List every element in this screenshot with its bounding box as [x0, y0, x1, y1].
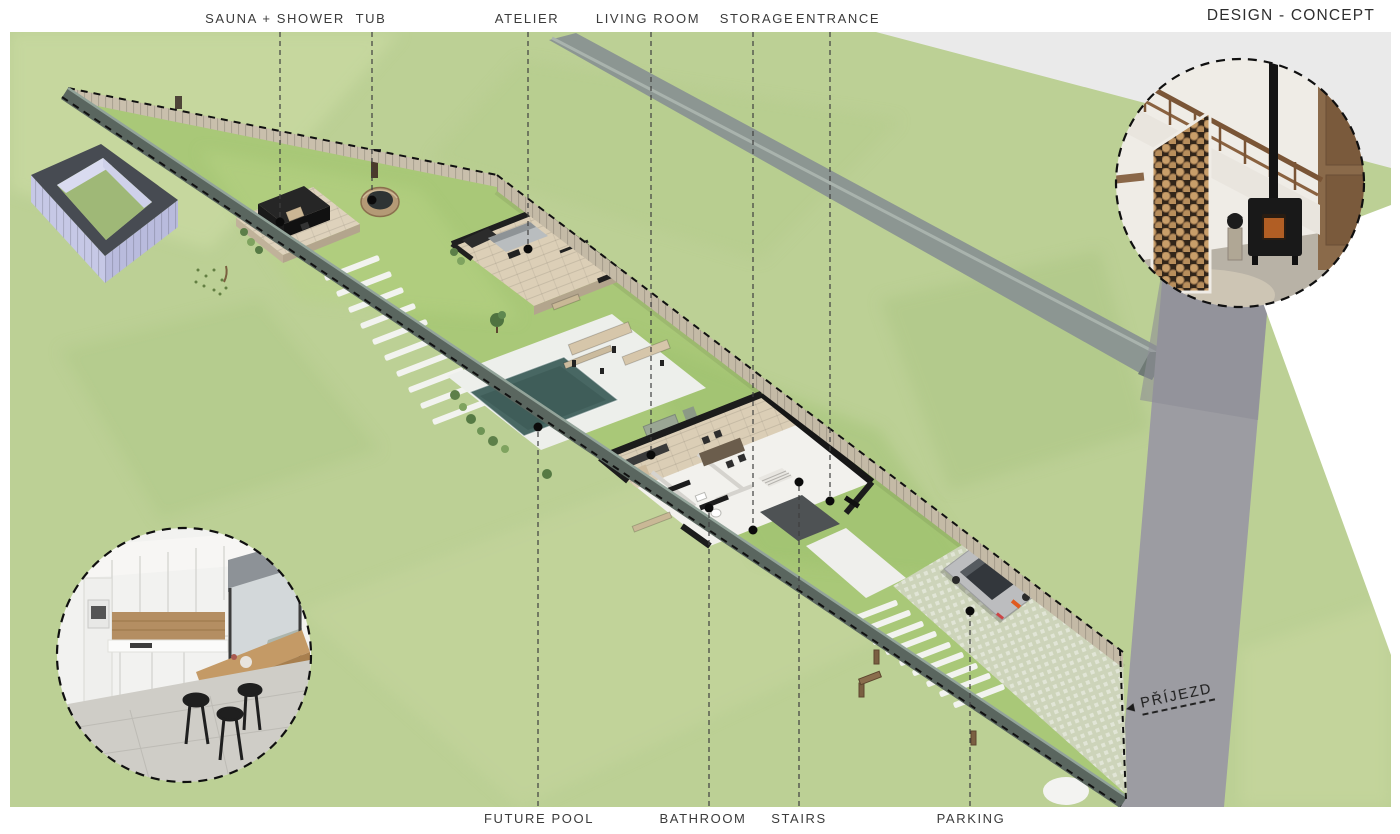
- label-storage: STORAGE: [720, 11, 795, 26]
- label-future-pool: FUTURE POOL: [484, 811, 594, 826]
- page-title: DESIGN - CONCEPT: [1207, 7, 1375, 25]
- design-concept-board: DESIGN - CONCEPT SAUNA + SHOWER TUB ATEL…: [0, 0, 1400, 834]
- label-bathroom: BATHROOM: [660, 811, 747, 826]
- label-stairs: STAIRS: [771, 811, 827, 826]
- label-tub: TUB: [356, 11, 387, 26]
- label-entrance: ENTRANCE: [796, 11, 880, 26]
- left-arrow-icon: ◀: [1125, 702, 1136, 715]
- label-parking: PARKING: [937, 811, 1006, 826]
- label-sauna-shower: SAUNA + SHOWER: [205, 11, 345, 26]
- label-living-room: LIVING ROOM: [596, 11, 700, 26]
- site-plan-rendering: [0, 0, 1400, 834]
- inset-photo-kitchen: [57, 528, 312, 783]
- label-atelier: ATELIER: [495, 11, 559, 26]
